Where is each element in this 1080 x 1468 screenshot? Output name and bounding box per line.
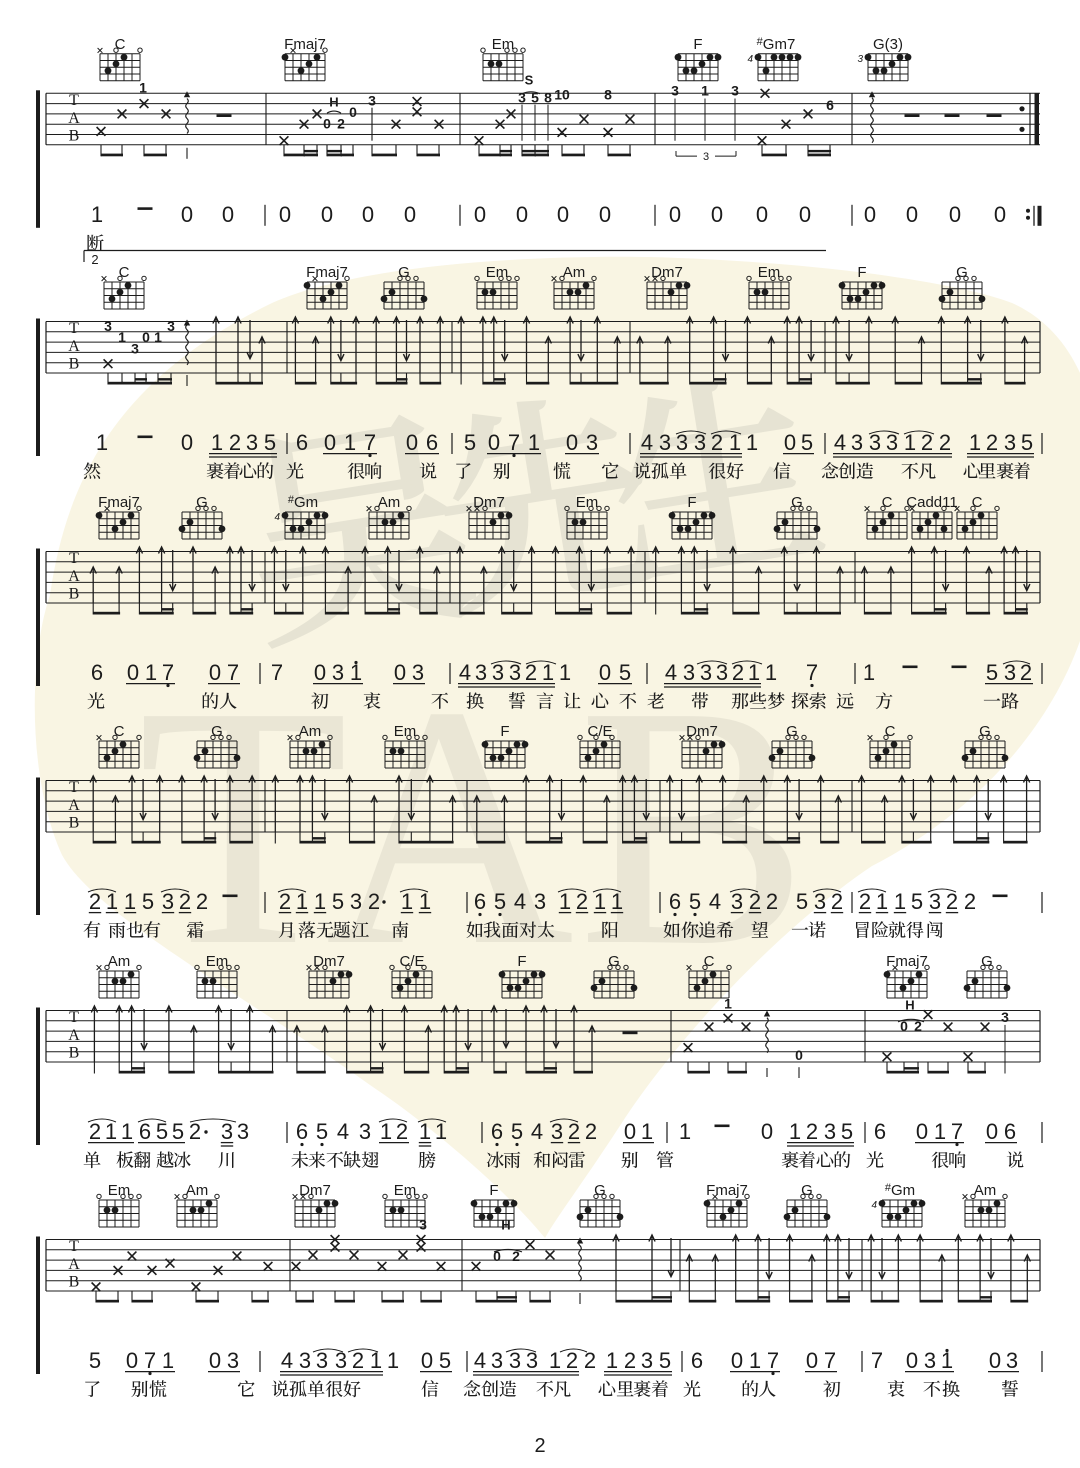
svg-text:2: 2 [189,1119,201,1144]
svg-text:Cadd11: Cadd11 [906,494,957,511]
svg-text:2: 2 [831,889,843,914]
svg-text:3: 3 [104,318,112,334]
svg-text:2: 2 [229,430,241,455]
svg-text:心: 心 [239,458,257,484]
svg-text:翻: 翻 [133,1147,151,1173]
svg-text:造: 造 [499,1376,517,1402]
svg-text:1: 1 [401,889,413,914]
svg-text:如: 如 [663,917,681,943]
svg-text:4: 4 [337,1119,349,1144]
svg-text:Fmaj7: Fmaj7 [98,494,140,511]
svg-text:对: 对 [519,917,537,943]
svg-text:光: 光 [286,458,304,484]
svg-text:1: 1 [139,79,147,95]
svg-text:雨: 雨 [503,1147,521,1173]
svg-text:1: 1 [789,1119,801,1144]
svg-text:1: 1 [749,1348,761,1373]
svg-text:10: 10 [554,87,570,103]
svg-text:2: 2 [585,1119,597,1144]
svg-text:G: G [791,494,803,511]
svg-text:Em: Em [576,494,599,511]
svg-text:Am: Am [108,953,131,970]
svg-text:2: 2 [921,430,933,455]
svg-text:2: 2 [624,1348,636,1373]
svg-text:裹: 裹 [781,1147,799,1173]
svg-text:管: 管 [656,1147,674,1173]
svg-text:3: 3 [1004,430,1016,455]
svg-text:说: 说 [419,458,437,484]
svg-text:5: 5 [172,1119,184,1144]
svg-text:了: 了 [454,458,472,484]
svg-text:H: H [905,998,914,1013]
svg-text:G: G [196,494,208,511]
svg-text:2: 2 [396,1119,408,1144]
svg-text:Am: Am [299,723,322,740]
svg-text:的: 的 [741,1376,759,1402]
svg-text:霜: 霜 [186,917,204,943]
svg-text:险: 险 [871,917,889,943]
svg-text:5: 5 [801,430,813,455]
svg-text:C: C [115,36,126,53]
svg-text:7: 7 [824,1348,836,1373]
svg-text:2: 2 [91,252,98,267]
svg-text:0: 0 [795,1047,803,1063]
svg-text:1: 1 [154,329,162,345]
svg-text:3: 3 [924,1348,936,1373]
svg-text:孤: 孤 [289,1376,307,1402]
svg-text:得: 得 [906,917,924,943]
svg-text:0: 0 [599,202,611,227]
svg-text:2: 2 [1020,660,1032,685]
svg-text:题: 题 [333,917,351,943]
svg-text:0: 0 [209,660,221,685]
svg-text:S: S [525,72,534,87]
svg-text:2: 2 [566,1348,578,1373]
svg-text:和: 和 [533,1147,551,1173]
svg-text:0: 0 [516,202,528,227]
svg-text:一: 一 [983,688,1001,714]
svg-text:6: 6 [1004,1119,1016,1144]
svg-text:1: 1 [542,660,554,685]
svg-text:3: 3 [475,660,487,685]
svg-text:3: 3 [492,660,504,685]
svg-text:0: 0 [324,430,336,455]
svg-text:1: 1 [118,329,126,345]
svg-text:有: 有 [143,917,161,943]
svg-text:6: 6 [669,889,681,914]
svg-text:路: 路 [1001,688,1019,714]
svg-text:3: 3 [1006,1348,1018,1373]
svg-text:1: 1 [934,1119,946,1144]
svg-text:Em: Em [394,1182,417,1199]
svg-text:B: B [69,356,80,373]
svg-text:0: 0 [126,1348,138,1373]
svg-text:5: 5 [841,1119,853,1144]
svg-text:冒: 冒 [853,917,871,943]
svg-text:缺: 缺 [343,1147,361,1173]
svg-text:H: H [329,95,338,110]
svg-text:很: 很 [347,458,365,484]
svg-text:3: 3 [299,1348,311,1373]
svg-text:3: 3 [412,660,424,685]
svg-text:单: 单 [669,458,687,484]
svg-text:着: 着 [1013,458,1031,484]
svg-text:5: 5 [316,1119,328,1144]
svg-text:说: 说 [271,1376,289,1402]
svg-text:0: 0 [222,202,234,227]
svg-text:3: 3 [857,54,863,65]
svg-text:0: 0 [711,202,723,227]
svg-text:2: 2 [806,1119,818,1144]
svg-text:G: G [979,723,991,740]
svg-text:0: 0 [474,202,486,227]
svg-text:0: 0 [784,430,796,455]
svg-text:6: 6 [296,1119,308,1144]
svg-text:未: 未 [291,1147,309,1173]
svg-text:里: 里 [616,1376,634,1402]
svg-text:G: G [981,953,993,970]
svg-text:着: 着 [798,1147,816,1173]
svg-text:慌: 慌 [149,1376,167,1402]
svg-text:追: 追 [698,917,716,943]
svg-text:5: 5 [531,90,539,106]
svg-text:2: 2 [946,889,958,914]
svg-text:T: T [69,320,79,337]
svg-text:3: 3 [350,889,362,914]
svg-text:很: 很 [325,1376,343,1402]
svg-text:2: 2 [196,889,208,914]
svg-text:2: 2 [576,889,588,914]
svg-text:1: 1 [380,1119,392,1144]
svg-text:说: 说 [1006,1147,1024,1173]
svg-text:B: B [69,1045,80,1062]
svg-text:A: A [68,110,80,127]
svg-text:裹: 裹 [996,458,1014,484]
svg-text:6: 6 [874,1119,886,1144]
svg-text:3: 3 [700,660,712,685]
svg-text:3: 3 [814,889,826,914]
svg-text:3: 3 [659,430,671,455]
svg-text:0: 0 [314,660,326,685]
svg-text:有: 有 [83,917,101,943]
svg-text:1: 1 [724,996,732,1012]
svg-text:3: 3 [731,82,739,98]
svg-text:1: 1 [559,660,571,685]
svg-text:3: 3 [703,151,709,163]
svg-text:3: 3 [359,1119,371,1144]
svg-text:G: G [786,723,798,740]
svg-text:信: 信 [773,458,791,484]
svg-text:言: 言 [536,688,554,714]
svg-text:1: 1 [611,889,623,914]
svg-text:6: 6 [691,1348,703,1373]
svg-text:0: 0 [279,202,291,227]
svg-text:1: 1 [121,1119,133,1144]
svg-text:3: 3 [237,1119,249,1144]
svg-text:1: 1 [748,660,760,685]
svg-text:3: 3 [1001,1009,1009,1025]
svg-text:光: 光 [87,688,105,714]
svg-text:0: 0 [669,202,681,227]
svg-text:着: 着 [651,1376,669,1402]
svg-text:凡: 凡 [553,1376,571,1402]
svg-text:A: A [68,338,80,355]
svg-text:0: 0 [406,430,418,455]
svg-text:F: F [489,1182,498,1199]
svg-text:不: 不 [431,688,449,714]
svg-text:裹: 裹 [206,458,224,484]
svg-text:5: 5 [439,1348,451,1373]
svg-text:0: 0 [321,202,333,227]
svg-text:T: T [69,1009,79,1026]
svg-text:Dm7: Dm7 [686,723,718,740]
svg-text:8: 8 [544,90,552,106]
svg-text:3: 3 [671,82,679,98]
svg-text:的: 的 [201,688,219,714]
svg-text:4: 4 [871,1200,877,1211]
svg-text:3: 3 [518,90,526,106]
svg-text:6: 6 [91,660,103,685]
svg-text:5: 5 [142,889,154,914]
svg-text:C/E: C/E [587,723,612,740]
svg-text:4: 4 [514,889,526,914]
svg-text:0: 0 [756,202,768,227]
svg-text:1: 1 [701,82,709,98]
svg-text:0: 0 [349,104,357,120]
svg-text:Am: Am [186,1182,209,1199]
svg-text:1: 1 [594,889,606,914]
svg-text:换: 换 [466,688,484,714]
svg-text:心: 心 [816,1147,834,1173]
svg-text:0: 0 [949,202,961,227]
svg-text:2: 2 [534,1435,545,1457]
svg-text:1: 1 [641,1119,653,1144]
svg-text:A: A [68,568,80,585]
svg-text:G: G [956,264,968,281]
svg-text:Am: Am [563,264,586,281]
svg-text:面: 面 [501,917,519,943]
svg-text:B: B [69,815,80,832]
svg-text:0: 0 [986,1119,998,1144]
svg-text:0: 0 [181,430,193,455]
svg-text:望: 望 [751,917,769,943]
svg-text:1: 1 [435,1119,447,1144]
svg-text:光: 光 [866,1147,884,1173]
svg-text:0: 0 [394,660,406,685]
svg-text:1: 1 [746,430,758,455]
svg-text:0: 0 [906,202,918,227]
svg-text:2: 2 [859,889,871,914]
svg-text:创: 创 [481,1376,499,1402]
svg-text:不: 不 [536,1376,554,1402]
svg-text:1: 1 [765,660,777,685]
svg-text:别: 别 [621,1147,639,1173]
svg-text:也: 也 [126,917,144,943]
svg-text:4: 4 [474,1348,486,1373]
svg-text:0: 0 [994,202,1006,227]
svg-text:A: A [68,797,80,814]
svg-text:很: 很 [708,458,726,484]
svg-text:0: 0 [900,1018,908,1034]
svg-text:7: 7 [162,660,174,685]
svg-text:那: 那 [731,688,749,714]
svg-text:Fmaj7: Fmaj7 [306,264,348,281]
svg-text:5: 5 [511,1119,523,1144]
svg-text:雷: 雷 [568,1147,586,1173]
svg-text:C: C [972,494,983,511]
svg-text:一: 一 [791,917,809,943]
svg-text:4: 4 [459,660,471,685]
svg-text:T: T [69,92,79,109]
svg-text:3: 3 [551,1119,563,1144]
svg-text:1: 1 [211,430,223,455]
svg-text:T: T [69,1238,79,1255]
svg-text:F: F [687,494,696,511]
svg-text:太: 太 [537,917,555,943]
svg-text:然: 然 [83,458,101,484]
svg-text:1: 1 [96,430,108,455]
svg-text:响: 响 [364,458,382,484]
svg-text:7: 7 [144,1348,156,1373]
svg-text:7: 7 [508,430,520,455]
svg-text:的: 的 [833,1147,851,1173]
svg-text:3: 3 [509,1348,521,1373]
svg-text:3: 3 [162,889,174,914]
svg-text:C: C [114,723,125,740]
svg-text:F: F [693,36,702,53]
svg-text:Fmaj7: Fmaj7 [706,1182,748,1199]
svg-text:信: 信 [421,1376,439,1402]
svg-text:0: 0 [906,1348,918,1373]
svg-text:方: 方 [875,688,893,714]
svg-text:1: 1 [419,889,431,914]
svg-text:G: G [594,1182,606,1199]
svg-text:1: 1 [106,889,118,914]
svg-text:1: 1 [162,1348,174,1373]
svg-text:别: 别 [131,1376,149,1402]
svg-text:0: 0 [761,1119,773,1144]
svg-text:Em: Em [492,36,515,53]
svg-text:T: T [69,550,79,567]
svg-text:0: 0 [493,1248,501,1264]
svg-text:好: 好 [343,1376,361,1402]
svg-text:0: 0 [181,202,193,227]
svg-text:0: 0 [624,1119,636,1144]
svg-text:6: 6 [491,1119,503,1144]
svg-text:F: F [857,264,866,281]
svg-text:来: 来 [308,1147,326,1173]
svg-text:3: 3 [332,660,344,685]
svg-text:翅: 翅 [361,1147,379,1173]
svg-text:1: 1 [969,430,981,455]
svg-text:3: 3 [929,889,941,914]
svg-text:1: 1 [145,660,157,685]
svg-text:3: 3 [534,889,546,914]
svg-text:1: 1 [679,1119,691,1144]
svg-text:G: G [211,723,223,740]
svg-text:5: 5 [911,889,923,914]
svg-text:1: 1 [419,1119,431,1144]
svg-text:单: 单 [307,1376,325,1402]
svg-text:2: 2 [89,1119,101,1144]
svg-text:0: 0 [127,660,139,685]
svg-text:1: 1 [314,889,326,914]
svg-text:B: B [69,586,80,603]
svg-text:0: 0 [916,1119,928,1144]
svg-text:7: 7 [271,660,283,685]
svg-text:它: 它 [601,458,619,484]
svg-text:1: 1 [876,889,888,914]
svg-text:7: 7 [767,1348,779,1373]
svg-text:远: 远 [836,688,854,714]
svg-text:带: 带 [691,688,709,714]
svg-text:誓: 誓 [1001,1376,1019,1402]
svg-text:Dm7: Dm7 [313,953,345,970]
svg-text:Em: Em [206,953,229,970]
svg-text:换: 换 [942,1376,960,1402]
svg-text:2: 2 [368,889,380,914]
svg-text:G(3): G(3) [873,36,903,53]
svg-text:不: 不 [326,1147,344,1173]
svg-text:5: 5 [619,660,631,685]
svg-text:人: 人 [758,1376,776,1402]
svg-text:7: 7 [871,1348,883,1373]
svg-text:C: C [704,953,715,970]
svg-text:5: 5 [986,660,998,685]
svg-text:6: 6 [474,889,486,914]
svg-text:0: 0 [989,1348,1001,1373]
svg-text:Am: Am [378,494,401,511]
svg-text:你: 你 [681,917,699,943]
svg-text:3: 3 [419,1217,427,1233]
svg-text:念: 念 [821,458,839,484]
svg-text:5: 5 [796,889,808,914]
svg-text:5: 5 [156,1119,168,1144]
svg-text:3: 3 [167,318,175,334]
svg-text:B: B [69,1274,80,1291]
svg-text:5: 5 [1021,430,1033,455]
svg-text:心: 心 [598,1376,616,1402]
svg-text:7: 7 [951,1119,963,1144]
svg-text:1: 1 [528,430,540,455]
svg-text:南: 南 [391,917,409,943]
svg-text:说: 说 [633,458,651,484]
svg-text:3: 3 [851,430,863,455]
svg-text:的: 的 [256,458,274,484]
svg-text:7: 7 [806,660,818,685]
svg-text:2: 2 [89,889,101,914]
svg-text:4: 4 [531,1119,543,1144]
svg-text:5: 5 [89,1348,101,1373]
svg-text:3: 3 [246,430,258,455]
svg-text:6: 6 [139,1119,151,1144]
svg-text:3: 3 [683,660,695,685]
svg-text:不: 不 [923,1376,941,1402]
svg-text:C: C [119,264,130,281]
svg-text:1: 1 [91,202,103,227]
svg-text:H: H [501,1218,510,1233]
svg-text:7: 7 [227,660,239,685]
svg-text:2: 2 [766,889,778,914]
svg-text:索: 索 [809,688,827,714]
svg-text:2: 2 [914,1018,922,1034]
svg-text:3: 3 [526,1348,538,1373]
svg-text:些: 些 [749,688,767,714]
svg-text:4: 4 [834,430,846,455]
svg-text:2: 2 [964,889,976,914]
svg-text:裹: 裹 [633,1376,651,1402]
svg-text:它: 它 [237,1376,255,1402]
